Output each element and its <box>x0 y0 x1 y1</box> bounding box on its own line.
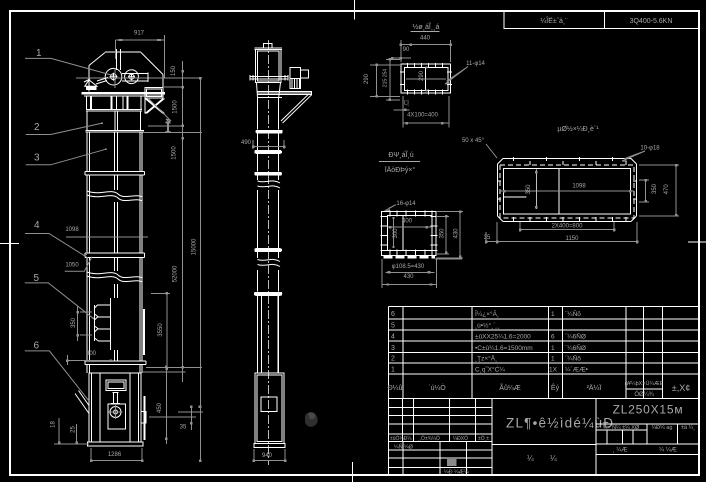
svg-text:1050: 1050 <box>65 263 79 269</box>
svg-text:´¼6ÑØ: ´¼6ÑØ <box>565 332 586 341</box>
svg-text:¼ÎË±ˆá¸¨: ¼ÎË±ˆá¸¨ <box>540 16 568 25</box>
svg-text:´¼6ÑØ: ´¼6ÑØ <box>565 343 586 352</box>
svg-text:φ108.5=430: φ108.5=430 <box>392 264 425 270</box>
svg-text:Đ¼û: Đ¼û <box>388 385 403 392</box>
svg-text:5: 5 <box>34 273 40 284</box>
svg-text:3: 3 <box>34 153 40 164</box>
svg-text:Ãû¼Æ: Ãû¼Æ <box>499 383 520 392</box>
svg-text:2: 2 <box>391 356 395 363</box>
svg-text:350: 350 <box>652 183 658 194</box>
svg-text:ĐΨ¸áĨ¸ú: ĐΨ¸áĨ¸ú <box>388 150 413 159</box>
svg-text:1500: 1500 <box>173 100 179 114</box>
svg-text:¸ ¼Æ: ¸ ¼Æ <box>613 448 628 454</box>
svg-text:²Ä¼Ï: ²Ä¼Ï <box>587 384 602 392</box>
svg-text:4X100=400: 4X100=400 <box>407 113 439 119</box>
svg-text:6: 6 <box>391 311 395 318</box>
svg-text:1: 1 <box>551 345 555 352</box>
svg-text:430: 430 <box>454 228 460 239</box>
svg-text:290: 290 <box>419 70 425 81</box>
svg-text:1098: 1098 <box>65 227 79 233</box>
svg-text:10-φ18: 10-φ18 <box>640 146 660 152</box>
svg-text:1: 1 <box>36 48 42 59</box>
svg-text:1500: 1500 <box>172 146 178 160</box>
svg-text:±,X¢: ±,X¢ <box>672 383 690 393</box>
svg-text:´¼Ñõ: ´¼Ñõ <box>565 309 581 318</box>
svg-text:4: 4 <box>34 220 40 231</box>
svg-text:ÖØ¼¾: ÖØ¼¾ <box>634 391 654 398</box>
svg-text:ZL250X15м: ZL250X15м <box>613 403 684 417</box>
svg-text:917: 917 <box>134 31 145 37</box>
svg-text:350: 350 <box>71 317 77 328</box>
svg-text:1: 1 <box>391 367 395 374</box>
svg-text:350: 350 <box>526 184 532 195</box>
svg-text:´¼Ñõ: ´¼Ñõ <box>565 354 581 363</box>
svg-text:1: 1 <box>551 311 555 318</box>
svg-text:1286: 1286 <box>108 452 122 458</box>
svg-text:150: 150 <box>171 65 177 76</box>
svg-text:2X400=800: 2X400=800 <box>552 224 584 230</box>
svg-text:11-φ14: 11-φ14 <box>466 61 485 67</box>
svg-text:5: 5 <box>391 323 395 330</box>
svg-text:440: 440 <box>420 36 431 42</box>
svg-text:16-φ14: 16-φ14 <box>396 201 416 207</box>
svg-text:215·254: 215·254 <box>383 69 389 88</box>
svg-text:2: 2 <box>34 122 40 133</box>
svg-text:ZL¶•ê½ìdé¼ùÐ: ZL¶•ê½ìdé¼ùÐ <box>506 416 614 431</box>
svg-text:15000: 15000 <box>192 238 198 255</box>
svg-text:¼Ð¼ ag: ¼Ð¼ ag <box>652 425 673 431</box>
svg-text:•C±û¼1.6=1500mm: •C±û¼1.6=1500mm <box>475 345 533 352</box>
svg-text:¼Ð ¼Æ¼: ¼Ð ¼Æ¼ <box>444 470 469 476</box>
svg-text:¼: ¼ <box>550 454 557 463</box>
svg-text:450: 450 <box>157 402 163 413</box>
svg-text:350: 350 <box>440 228 446 239</box>
svg-text:1098: 1098 <box>572 184 586 190</box>
svg-text:290: 290 <box>364 73 370 84</box>
svg-text:¼ ¼Æ: ¼ ¼Æ <box>659 448 677 454</box>
svg-text:90: 90 <box>403 47 410 53</box>
svg-text:±ûÓ¼Ð¼: ±ûÓ¼Ð¼ <box>390 435 412 442</box>
svg-text:µ¥¼þX×Ü¼ÆE: µ¥¼þX×Ü¼ÆE <box>625 380 664 387</box>
svg-text:470: 470 <box>664 184 670 195</box>
svg-text:Êý: Êý <box>551 383 560 392</box>
svg-text:¼´ÆÆ•: ¼´ÆÆ• <box>565 367 589 374</box>
svg-text:940: 940 <box>262 453 273 459</box>
svg-text:35: 35 <box>484 235 491 241</box>
svg-text:¼Ñ ¼Ø: ¼Ñ ¼Ø <box>394 444 414 451</box>
svg-text:1: 1 <box>551 356 555 363</box>
svg-text:3550: 3550 <box>158 323 164 337</box>
svg-text:1X: 1X <box>549 367 558 374</box>
svg-text:C¸q˜X°Ć¼: C¸q˜X°Ć¼ <box>475 365 505 374</box>
svg-text:300: 300 <box>393 228 399 239</box>
svg-text:900: 900 <box>86 351 97 357</box>
svg-text:¼× Ñ¼ ±¼ XØ: ¼× Ñ¼ ±¼ XØ <box>603 424 640 431</box>
svg-text:¸ù•½°¸´˛¸: ¸ù•½°¸´˛¸ <box>475 322 500 330</box>
svg-text:25: 25 <box>71 426 77 433</box>
svg-text:±ä ¼¸: ±ä ¼¸ <box>681 425 695 431</box>
svg-text:¼: ¼ <box>527 454 534 463</box>
svg-text:Ī¼¿×°Ā¸: Ī¼¿×°Ā¸ <box>475 310 499 318</box>
svg-text:6: 6 <box>34 341 40 352</box>
svg-text:4: 4 <box>391 334 395 341</box>
svg-text:±Ó¸±: ±Ó¸± <box>478 435 489 442</box>
svg-text:ÏÄòÐÞý×°: ÏÄòÐÞý×° <box>385 166 416 174</box>
svg-text:¸,Ó±¾¼Ö: ¸,Ó±¾¼Ö <box>418 435 440 442</box>
svg-text:6: 6 <box>551 334 555 341</box>
svg-text:52000: 52000 <box>173 265 179 282</box>
svg-text:µØ½×¼Ð¸è´¹: µØ½×¼Ð¸è´¹ <box>557 125 599 133</box>
svg-text:½ø¸áĨ¸¸á: ½ø¸áĨ¸¸á <box>413 22 440 31</box>
svg-text:400: 400 <box>402 219 413 225</box>
svg-text:Ľļ: Ľļ <box>404 101 409 107</box>
svg-text:±ûXX25¼1.6=2000: ±ûXX25¼1.6=2000 <box>475 334 531 341</box>
svg-text:490: 490 <box>241 140 252 146</box>
svg-text:´ú¼Ò: ´ú¼Ò <box>428 383 446 392</box>
svg-text:430: 430 <box>403 274 414 280</box>
svg-text:¸Ţz×°Ā¸: ¸Ţz×°Ā¸ <box>475 355 497 363</box>
svg-text:35: 35 <box>180 425 187 431</box>
svg-text:3Q400-5.6KN: 3Q400-5.6KN <box>630 18 673 25</box>
svg-text:¼ÐXÓ: ¼ÐXÓ <box>453 435 468 442</box>
svg-text:3: 3 <box>391 345 395 352</box>
svg-text:18: 18 <box>51 421 57 428</box>
svg-text:50 x 45°: 50 x 45° <box>462 138 485 144</box>
